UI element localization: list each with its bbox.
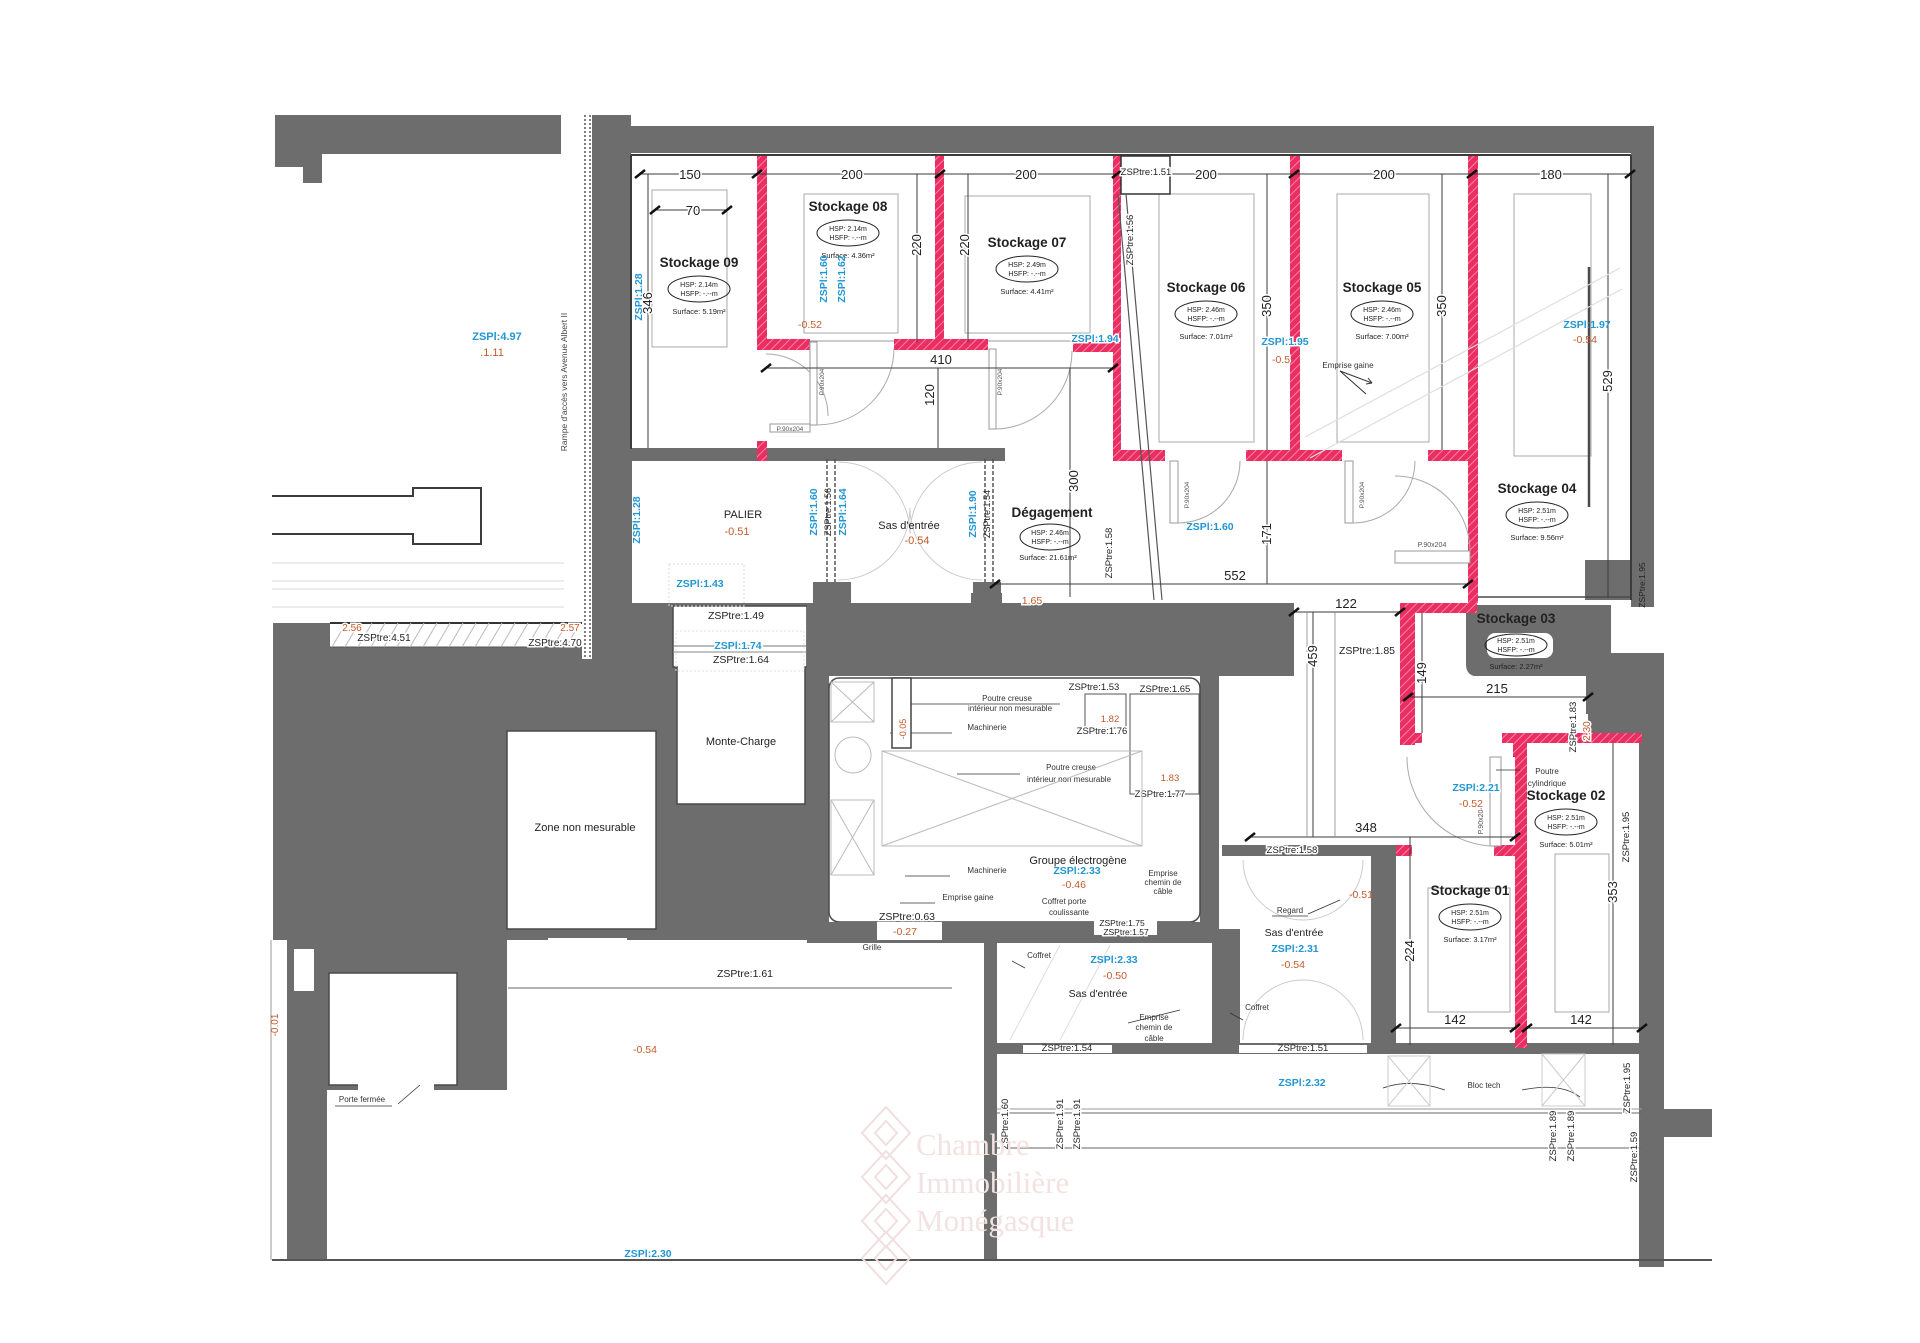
svg-text:-0.52: -0.52 xyxy=(798,319,822,331)
svg-text:câble: câble xyxy=(1144,1034,1164,1043)
svg-text:-0.52: -0.52 xyxy=(1459,798,1483,810)
svg-text:142: 142 xyxy=(1570,1012,1592,1027)
svg-text:200: 200 xyxy=(841,167,863,182)
svg-text:1.83: 1.83 xyxy=(1161,773,1180,784)
svg-text:HSP: 2.46m: HSP: 2.46m xyxy=(1031,530,1069,537)
svg-text:HSP: 2.46m: HSP: 2.46m xyxy=(1363,307,1401,314)
svg-text:Surface: 5.01m²: Surface: 5.01m² xyxy=(1539,840,1593,849)
svg-text:459: 459 xyxy=(1305,645,1320,667)
svg-text:coulissante: coulissante xyxy=(1049,908,1090,917)
svg-text:ZSPl:1.94: ZSPl:1.94 xyxy=(1071,333,1118,345)
svg-text:chemin de: chemin de xyxy=(1145,878,1182,887)
svg-text:-0.51: -0.51 xyxy=(1349,889,1373,901)
svg-text:ZSPtre:1.57: ZSPtre:1.57 xyxy=(1103,927,1149,937)
svg-text:P.90x204: P.90x204 xyxy=(1359,481,1366,508)
svg-text:Surface: 7.01m²: Surface: 7.01m² xyxy=(1179,332,1233,341)
svg-text:200: 200 xyxy=(1015,167,1037,182)
svg-text:ZSPl:2.33: ZSPl:2.33 xyxy=(1090,954,1137,966)
svg-text:ZSPtre:1.91: ZSPtre:1.91 xyxy=(1072,1099,1083,1150)
svg-text:348: 348 xyxy=(1355,820,1377,835)
svg-text:Stockage 08: Stockage 08 xyxy=(809,199,888,214)
svg-text:-0.5: -0.5 xyxy=(1272,354,1290,366)
svg-text:intérieur non mesurable: intérieur non mesurable xyxy=(1027,775,1112,784)
svg-text:Sas d'entrée: Sas d'entrée xyxy=(1069,988,1128,1000)
svg-text:ZSPtre:0.63: ZSPtre:0.63 xyxy=(879,911,935,923)
svg-text:Sas d'entrée: Sas d'entrée xyxy=(878,520,939,532)
svg-text:Surface: 9.56m²: Surface: 9.56m² xyxy=(1510,533,1564,542)
svg-text:300: 300 xyxy=(1066,470,1081,492)
svg-text:ZSPtre:1.54: ZSPtre:1.54 xyxy=(982,490,992,538)
svg-text:ZSPl:1.64: ZSPl:1.64 xyxy=(837,488,849,535)
svg-text:-0.54: -0.54 xyxy=(904,535,929,547)
svg-text:Regard: Regard xyxy=(1277,906,1303,915)
svg-text:ZSPl:2.31: ZSPl:2.31 xyxy=(1271,943,1318,955)
svg-text:350: 350 xyxy=(1434,295,1449,317)
svg-text:171: 171 xyxy=(1259,523,1274,545)
svg-text:120: 120 xyxy=(922,384,937,406)
svg-text:HSFP: -.--m: HSFP: -.--m xyxy=(1497,647,1534,654)
svg-text:ZSPtre:1.51: ZSPtre:1.51 xyxy=(1121,167,1172,178)
svg-text:ZSPl:1.74: ZSPl:1.74 xyxy=(714,640,761,652)
svg-text:ZSPtre:1.85: ZSPtre:1.85 xyxy=(1339,645,1395,657)
svg-text:ZSPtre:1.58: ZSPtre:1.58 xyxy=(1267,845,1318,856)
svg-text:Emprise gaine: Emprise gaine xyxy=(1322,361,1374,370)
svg-text:ZSPtre:1.56: ZSPtre:1.56 xyxy=(823,488,833,536)
svg-text:.1.11: .1.11 xyxy=(480,347,504,359)
svg-text:HSFP: -.--m: HSFP: -.--m xyxy=(1008,271,1045,278)
svg-text:552: 552 xyxy=(1224,568,1246,583)
svg-text:200: 200 xyxy=(1195,167,1217,182)
svg-text:122: 122 xyxy=(1335,596,1357,611)
svg-text:-0.27: -0.27 xyxy=(893,926,917,938)
svg-text:chemin de: chemin de xyxy=(1136,1023,1173,1032)
svg-text:Sas d'entrée: Sas d'entrée xyxy=(1265,927,1324,939)
svg-text:ZSPtre:1.95: ZSPtre:1.95 xyxy=(1621,812,1632,863)
svg-text:ZSPl:2.32: ZSPl:2.32 xyxy=(1278,1077,1325,1089)
svg-text:HSFP: -.--m: HSFP: -.--m xyxy=(1547,824,1584,831)
svg-text:220: 220 xyxy=(957,234,972,256)
svg-text:Immobilière: Immobilière xyxy=(916,1165,1069,1200)
svg-text:ZSPl:1.60: ZSPl:1.60 xyxy=(808,488,820,535)
svg-text:ZSPtre:1.95: ZSPtre:1.95 xyxy=(1637,562,1647,608)
svg-text:ZSPl:2.30: ZSPl:2.30 xyxy=(624,1248,671,1260)
svg-text:P.90x204: P.90x204 xyxy=(819,368,826,395)
svg-text:142: 142 xyxy=(1444,1012,1466,1027)
svg-text:-0.54: -0.54 xyxy=(1573,334,1597,346)
svg-text:Machinerie: Machinerie xyxy=(967,723,1007,732)
svg-text:PALIER: PALIER xyxy=(724,509,762,521)
svg-text:529: 529 xyxy=(1600,370,1615,392)
svg-text:ZSPl:1.28: ZSPl:1.28 xyxy=(633,273,645,320)
svg-text:HSP: 2.51m: HSP: 2.51m xyxy=(1497,638,1535,645)
svg-text:câble: câble xyxy=(1153,887,1173,896)
svg-text:ZSPtre:1.53: ZSPtre:1.53 xyxy=(1069,682,1120,693)
svg-text:ZSPl:2.33: ZSPl:2.33 xyxy=(1053,865,1100,877)
svg-text:ZSPl:1.90: ZSPl:1.90 xyxy=(967,490,979,537)
svg-text:P.90x204: P.90x204 xyxy=(1184,481,1191,508)
svg-text:Machinerie: Machinerie xyxy=(967,866,1007,875)
svg-text:ZSPtre:4.51: ZSPtre:4.51 xyxy=(357,633,411,644)
svg-text:ZSPl:1.60: ZSPl:1.60 xyxy=(818,255,830,302)
svg-text:Bloc tech: Bloc tech xyxy=(1468,1081,1501,1090)
svg-text:HSP: 2.14m: HSP: 2.14m xyxy=(680,282,718,289)
svg-text:HSFP: -.--m: HSFP: -.--m xyxy=(829,235,866,242)
svg-text:Surface: 21.61m²: Surface: 21.61m² xyxy=(1019,553,1077,562)
svg-text:Surface: 5.19m²: Surface: 5.19m² xyxy=(672,307,726,316)
svg-text:-0.50: -0.50 xyxy=(1103,970,1127,982)
svg-text:Rampe d'accès vers Avenue Albe: Rampe d'accès vers Avenue Albert II xyxy=(559,313,569,452)
svg-text:ZSPtre:1.58: ZSPtre:1.58 xyxy=(1104,528,1115,579)
svg-text:HSP: 2.14m: HSP: 2.14m xyxy=(829,226,867,233)
svg-text:ZSPtre:1.54: ZSPtre:1.54 xyxy=(1042,1043,1093,1054)
svg-text:ZSPtre:1.91: ZSPtre:1.91 xyxy=(1055,1099,1066,1150)
svg-text:P.90x204: P.90x204 xyxy=(997,368,1004,395)
svg-text:Stockage 06: Stockage 06 xyxy=(1167,280,1246,295)
svg-text:HSP: 2.46m: HSP: 2.46m xyxy=(1187,307,1225,314)
svg-text:ZSPl:1.28: ZSPl:1.28 xyxy=(631,496,643,543)
svg-text:ZSPtre:1.95: ZSPtre:1.95 xyxy=(1622,1063,1633,1114)
svg-text:ZSPl:2.21: ZSPl:2.21 xyxy=(1452,782,1499,794)
svg-text:Emprise: Emprise xyxy=(1148,869,1178,878)
svg-text:Coffret: Coffret xyxy=(1245,1003,1270,1012)
svg-text:70: 70 xyxy=(686,203,700,218)
svg-text:HSFP: -.--m: HSFP: -.--m xyxy=(1031,539,1068,546)
svg-text:220: 220 xyxy=(909,234,924,256)
svg-text:Stockage 05: Stockage 05 xyxy=(1343,280,1422,295)
svg-text:Monégasque: Monégasque xyxy=(916,1203,1074,1238)
svg-text:ZSPl:1.43: ZSPl:1.43 xyxy=(676,578,723,590)
svg-text:ZSPtre:1.83: ZSPtre:1.83 xyxy=(1568,702,1579,753)
svg-text:HSP: 2.49m: HSP: 2.49m xyxy=(1008,262,1046,269)
svg-text:Surface: 3.17m²: Surface: 3.17m² xyxy=(1443,935,1497,944)
svg-text:Dégagement: Dégagement xyxy=(1011,505,1093,520)
svg-text:Zone non mesurable: Zone non mesurable xyxy=(535,822,636,834)
svg-text:Stockage 07: Stockage 07 xyxy=(988,235,1067,250)
svg-text:2.57: 2.57 xyxy=(560,623,580,634)
svg-text:Coffret porte: Coffret porte xyxy=(1042,897,1087,906)
svg-text:HSFP: -.--m: HSFP: -.--m xyxy=(1187,316,1224,323)
svg-text:Stockage 01: Stockage 01 xyxy=(1431,883,1510,898)
svg-text:150: 150 xyxy=(679,167,701,182)
svg-text:-0.05: -0.05 xyxy=(898,719,908,740)
svg-text:-0.01: -0.01 xyxy=(270,1013,281,1036)
svg-text:HSFP: -.--m: HSFP: -.--m xyxy=(1451,919,1488,926)
svg-text:2.30: 2.30 xyxy=(1582,721,1593,741)
svg-text:ZSPtre:1.65: ZSPtre:1.65 xyxy=(1140,684,1191,695)
svg-text:ZSPl:1.97: ZSPl:1.97 xyxy=(1563,319,1610,331)
svg-text:HSP: 2.51m: HSP: 2.51m xyxy=(1547,815,1585,822)
svg-text:149: 149 xyxy=(1414,662,1429,684)
svg-text:HSFP: -.--m: HSFP: -.--m xyxy=(680,291,717,298)
svg-text:ZSPtre:1.76: ZSPtre:1.76 xyxy=(1077,726,1128,737)
svg-text:ZSPl:1.60: ZSPl:1.60 xyxy=(1186,521,1233,533)
svg-text:Surface: 7.00m²: Surface: 7.00m² xyxy=(1355,332,1409,341)
svg-text:Porte fermée: Porte fermée xyxy=(339,1095,386,1104)
svg-text:Surface: 2.27m²: Surface: 2.27m² xyxy=(1489,662,1543,671)
svg-text:ZSPtre:1.89: ZSPtre:1.89 xyxy=(1566,1111,1577,1162)
svg-text:1.65: 1.65 xyxy=(1022,595,1043,607)
svg-text:180: 180 xyxy=(1540,167,1562,182)
svg-text:-0.54: -0.54 xyxy=(1281,959,1305,971)
svg-text:HSP: 2.51m: HSP: 2.51m xyxy=(1518,508,1556,515)
svg-text:ZSPl:4.97: ZSPl:4.97 xyxy=(472,331,522,343)
svg-text:HSFP: -.--m: HSFP: -.--m xyxy=(1363,316,1400,323)
svg-text:Coffret: Coffret xyxy=(1027,951,1052,960)
svg-text:Monte-Charge: Monte-Charge xyxy=(706,736,776,748)
svg-text:Poutre creuse: Poutre creuse xyxy=(982,694,1032,703)
svg-text:Stockage 04: Stockage 04 xyxy=(1498,481,1577,496)
svg-text:ZSPtre:1.61: ZSPtre:1.61 xyxy=(717,968,773,980)
svg-text:ZSPtre:1.59: ZSPtre:1.59 xyxy=(1629,1132,1640,1183)
svg-text:215: 215 xyxy=(1486,681,1508,696)
svg-text:Emprise gaine: Emprise gaine xyxy=(942,893,994,902)
svg-text:353: 353 xyxy=(1605,881,1620,903)
svg-text:ZSPtre:1.89: ZSPtre:1.89 xyxy=(1548,1111,1559,1162)
svg-text:ZSPtre:1.56: ZSPtre:1.56 xyxy=(1125,215,1136,266)
svg-text:Grille: Grille xyxy=(863,943,882,952)
svg-text:-0.46: -0.46 xyxy=(1062,879,1086,891)
svg-text:ZSPl:1.62: ZSPl:1.62 xyxy=(836,255,848,302)
svg-text:Stockage 02: Stockage 02 xyxy=(1527,788,1606,803)
svg-text:Stockage 09: Stockage 09 xyxy=(660,255,739,270)
svg-text:410: 410 xyxy=(930,352,952,367)
svg-text:ZSPl:1.95: ZSPl:1.95 xyxy=(1261,336,1308,348)
svg-text:HSP: 2.51m: HSP: 2.51m xyxy=(1451,910,1489,917)
svg-text:cylindrique: cylindrique xyxy=(1528,779,1567,788)
svg-text:200: 200 xyxy=(1373,167,1395,182)
svg-text:Chambre: Chambre xyxy=(916,1127,1030,1162)
svg-text:ZSPtre:1.49: ZSPtre:1.49 xyxy=(708,610,764,622)
svg-text:intérieur non mesurable: intérieur non mesurable xyxy=(968,704,1053,713)
svg-text:1.82: 1.82 xyxy=(1101,714,1120,725)
svg-text:P.90x204: P.90x204 xyxy=(1418,542,1447,549)
svg-text:HSFP: -.--m: HSFP: -.--m xyxy=(1518,517,1555,524)
svg-text:ZSPtre:4.70: ZSPtre:4.70 xyxy=(528,638,582,649)
svg-text:Poutre: Poutre xyxy=(1535,767,1559,776)
svg-text:P.90x204: P.90x204 xyxy=(777,426,804,433)
svg-text:Stockage 03: Stockage 03 xyxy=(1477,611,1556,626)
svg-text:350: 350 xyxy=(1259,295,1274,317)
svg-text:Emprise: Emprise xyxy=(1139,1013,1169,1022)
svg-text:ZSPtre:1.51: ZSPtre:1.51 xyxy=(1278,1043,1329,1054)
svg-text:-0.54: -0.54 xyxy=(633,1044,657,1056)
svg-text:-0.51: -0.51 xyxy=(724,526,749,538)
svg-text:Surface: 4.41m²: Surface: 4.41m² xyxy=(1000,287,1054,296)
svg-text:224: 224 xyxy=(1402,940,1417,962)
svg-text:ZSPtre:1.64: ZSPtre:1.64 xyxy=(713,654,769,666)
